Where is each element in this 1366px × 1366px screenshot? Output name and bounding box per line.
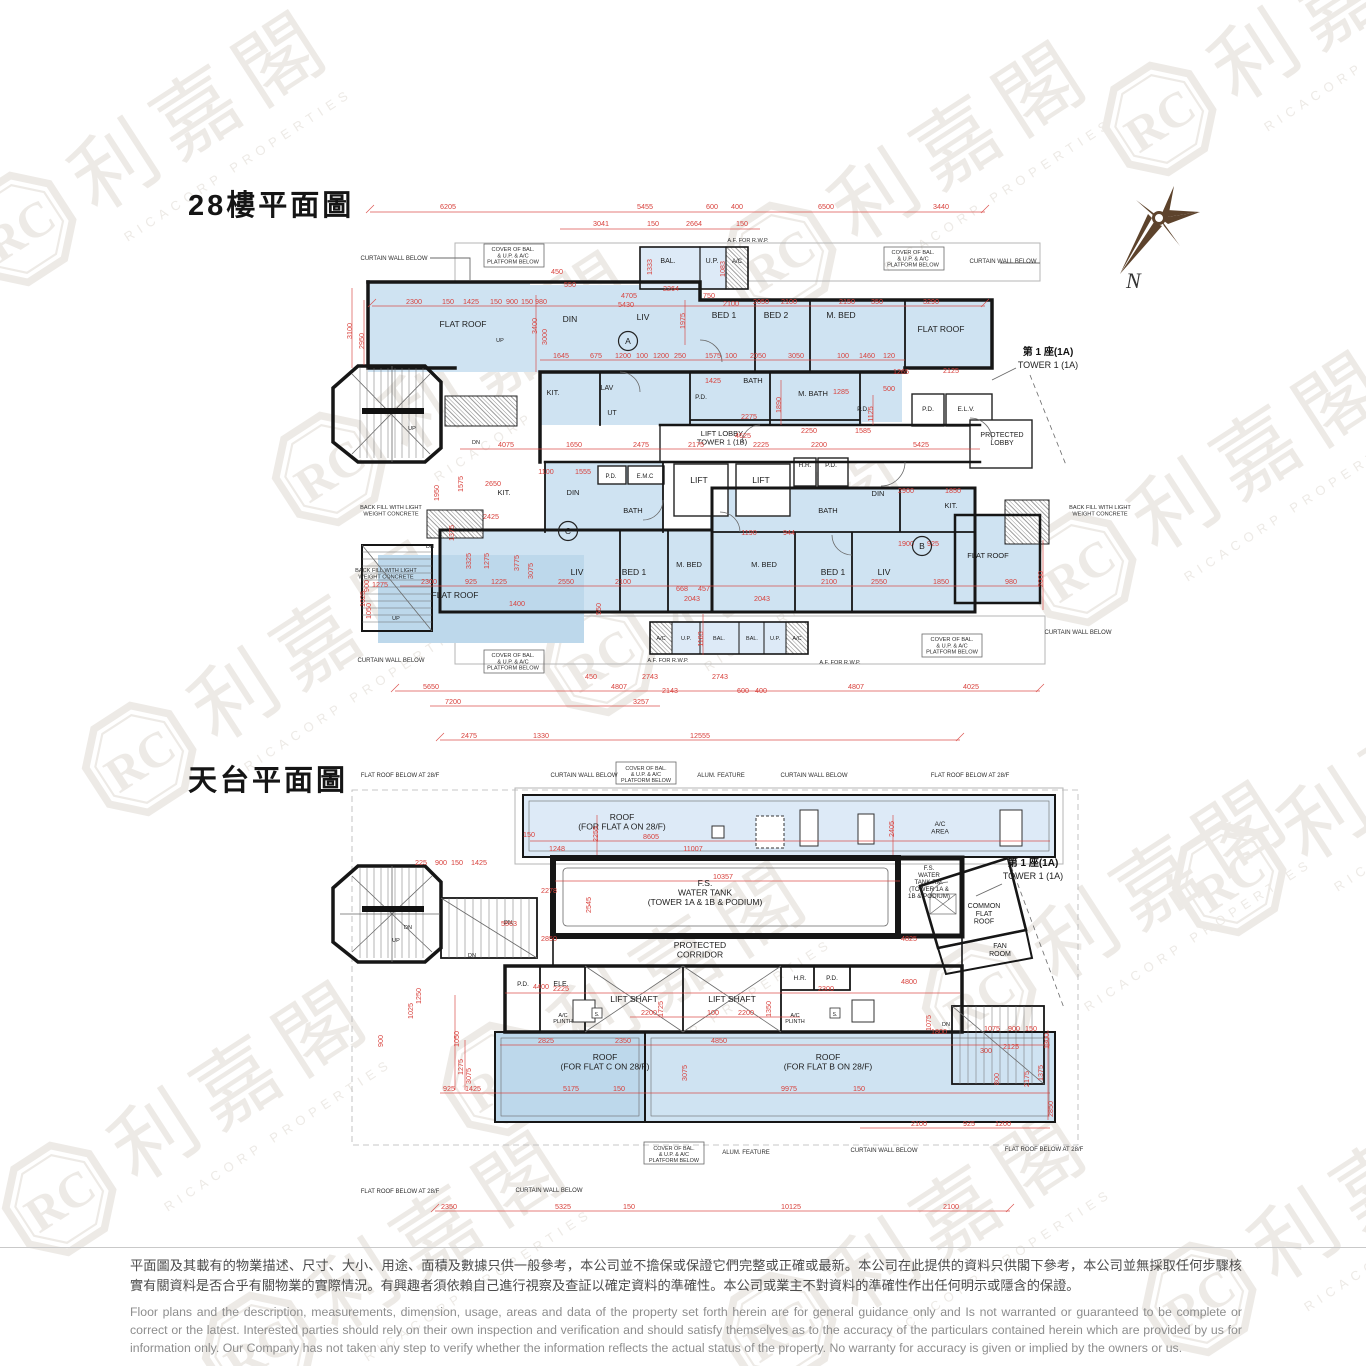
dimension-label: 1425 [705, 376, 721, 385]
dimension-label: 4850 [711, 1036, 727, 1045]
dimension-label: 400 [731, 202, 743, 211]
dimension-label: 2550 [558, 577, 574, 586]
dimension-label: 2250 [801, 426, 817, 435]
dimension-label: 150 [623, 1202, 635, 1211]
annotation-label: CURTAIN WALL BELOW [780, 773, 847, 779]
annotation-label: COVER OF BAL.& U.P. & A/CPLATFORM BELOW [487, 247, 540, 266]
dimension-label: 2350 [615, 1036, 631, 1045]
dimension-label: 450 [585, 672, 597, 681]
dimension-label: 3400 [530, 318, 539, 334]
dimension-label: 2300 [818, 984, 834, 993]
dimension-label: 1200 [615, 351, 631, 360]
room-label: U.P. [706, 258, 719, 265]
dimension-label: 2850 [1046, 1101, 1055, 1117]
dimension-label: 2100 [723, 299, 739, 308]
dimension-label: 150 [647, 219, 659, 228]
room-label: A/CPLINTH [785, 1013, 805, 1025]
dimension-label: 5175 [563, 1084, 579, 1093]
dimension-label: 2150 [839, 297, 855, 306]
dimension-label: 2200 [738, 1008, 754, 1017]
room-label: DN [468, 953, 476, 959]
annotation-label: CURTAIN WALL BELOW [969, 259, 1036, 265]
dimension-label: 925 [927, 539, 939, 548]
dimension-label: 100 [707, 1008, 719, 1017]
dimension-label: 6500 [818, 202, 834, 211]
room-label: UP [392, 616, 400, 622]
disclaimer: 平面圖及其載有的物業描述、尺寸、大小、用途、面積及數據只供一般參考，本公司並不擔… [130, 1256, 1242, 1357]
room-label: BED 2 [764, 310, 789, 320]
annotation-label: CURTAIN WALL BELOW [515, 1188, 582, 1194]
dimension-label: 150 [853, 1084, 865, 1093]
dimension-label: 3290 [923, 297, 939, 306]
room-label: M. BED [676, 560, 702, 569]
dimension-label: 1425 [471, 858, 487, 867]
annotation-label: COVER OF BAL.& U.P. & A/CPLATFORM BELOW [887, 250, 940, 269]
flat-letter: B [919, 541, 925, 551]
dimension-label: 1800 [931, 1027, 947, 1036]
annotation-label: A.F. FOR R.W.P. [647, 658, 689, 664]
annotation-label: BACK FILL WITH LIGHTWEIGHT CONCRETE [1069, 505, 1131, 517]
dimension-label: 2743 [642, 672, 658, 681]
dimension-label: 5430 [618, 300, 634, 309]
dimension-label: 1285 [833, 387, 849, 396]
room-label: UT [607, 410, 617, 417]
dimension-label: 100 [636, 351, 648, 360]
dimension-label: 980 [535, 297, 547, 306]
dimension-label: 5455 [637, 202, 653, 211]
dimension-label: 1850 [933, 577, 949, 586]
dimension-label: 2200 [641, 1008, 657, 1017]
plan-roof: 第 1 座(1A) TOWER 1 (1A) ROOF(FOR FLAT A O… [333, 731, 1084, 1212]
tower-tag-en-roof: TOWER 1 (1A) [1003, 871, 1063, 881]
annotation-label: CURTAIN WALL BELOW [850, 1148, 917, 1154]
dimension-label: 1975 [678, 313, 687, 329]
dimension-label: 3325 [464, 553, 473, 569]
room-label: DIN [567, 488, 580, 497]
dimension-label: 2664 [686, 219, 702, 228]
dimension-label: 1333 [645, 259, 654, 275]
dimension-label: 4625 [735, 431, 751, 440]
room-label: LAV [601, 385, 614, 392]
dimension-label: 2225 [553, 984, 569, 993]
room-label: E.L.V. [957, 406, 974, 413]
room-label: A/CPLINTH [553, 1013, 573, 1025]
dimension-label: 3440 [933, 202, 949, 211]
room-label: P.D. [825, 462, 837, 469]
dimension-label: 800 [992, 1073, 1001, 1085]
dimension-label: 1125 [866, 406, 875, 421]
dimension-label: 900 [362, 580, 371, 592]
dimension-label: 1725 [656, 1001, 665, 1017]
dimension-label: 12555 [690, 731, 710, 740]
dimension-label: 1183 [696, 631, 705, 646]
annotation-label: FLAT ROOF BELOW AT 28/F [361, 1189, 440, 1195]
annotation-label: ALUM. FEATURE [697, 773, 745, 779]
dimension-label: 2475 [461, 731, 477, 740]
dimension-label: 2743 [712, 672, 728, 681]
annotation-label: CURTAIN WALL BELOW [360, 256, 427, 262]
room-label: BED 1 [821, 567, 846, 577]
room-label: LIV [637, 312, 650, 322]
dimension-label: 5425 [913, 440, 929, 449]
dimension-label: 1645 [553, 351, 569, 360]
dimension-label: 2100 [911, 1119, 927, 1128]
dimension-label: 675 [590, 351, 602, 360]
room-label: DIN [872, 489, 885, 498]
annotation-label: A.F. FOR R.W.P. [727, 238, 769, 244]
room-label: P.D. [826, 975, 838, 982]
dimension-label: 1275 [482, 553, 491, 569]
dimension-label: 550 [594, 603, 603, 615]
dimension-label: 10357 [713, 872, 733, 881]
dimension-label: 2264 [663, 284, 679, 293]
dimension-label: 2300 [421, 577, 437, 586]
dimension-label: 3075 [526, 563, 535, 579]
room-label: DN [426, 544, 434, 550]
room-label: M. BED [751, 560, 777, 569]
room-label: S. [833, 1012, 838, 1018]
room-label: KIT. [498, 488, 511, 497]
dimension-label: 2550 [871, 577, 887, 586]
dimension-label: 457 [698, 584, 710, 593]
annotation-label: FLAT ROOF BELOW AT 28/F [1005, 1147, 1084, 1153]
dimension-label: 400 [755, 686, 767, 695]
dimension-label: 2143 [662, 686, 678, 695]
dimension-label: 944 [783, 528, 795, 537]
dimension-label: 1375 [447, 525, 456, 541]
annotation-label: COVER OF BAL.& U.P. & A/CPLATFORM BELOW [487, 653, 540, 672]
dimension-label: 2043 [684, 594, 700, 603]
dimension-label: 3257 [633, 697, 649, 706]
room-label: UP [496, 338, 504, 344]
room-label: M. BED [826, 310, 855, 320]
dimension-label: 2175 [688, 440, 704, 449]
dimension-label: 1300 [1042, 1033, 1051, 1049]
room-label: DN [472, 440, 480, 446]
dimension-label: 1350 [764, 1001, 773, 1017]
dimension-label: 2650 [485, 479, 501, 488]
dimension-label: 2275 [741, 412, 757, 421]
dimension-label: 1850 [945, 486, 961, 495]
dimension-label: 350 [871, 297, 883, 306]
dimension-label: 120 [883, 351, 895, 360]
dimension-label: 1025 [406, 1003, 415, 1019]
dimension-label: 550 [564, 280, 576, 289]
dimension-label: 100 [725, 351, 737, 360]
plan-roof-stair-octagon [333, 866, 537, 962]
dimension-label: 4400 [533, 982, 549, 991]
dimension-label: 4800 [901, 977, 917, 986]
dimension-label: 668 [676, 584, 688, 593]
dimension-label: 150 [490, 297, 502, 306]
roof-plan-title: 天台平面圖 [188, 757, 348, 799]
disclaimer-divider [0, 1247, 1366, 1248]
annotation-label: BACK FILL WITH LIGHTWEIGHT CONCRETE [360, 505, 422, 517]
dimension-label: 2425 [483, 512, 499, 521]
room-label: KIT. [547, 388, 560, 397]
dimension-label: 9975 [781, 1084, 797, 1093]
dimension-label: 1330 [533, 731, 549, 740]
plan-28f-stair-octagon [333, 366, 441, 462]
dimension-label: 3041 [593, 219, 609, 228]
tower-tag-zh-28f: 第 1 座(1A) [1023, 345, 1074, 358]
annotation-label: COVER OF BAL.& U.P. & A/CPLATFORM BELOW [649, 1146, 700, 1164]
dimension-label: 150 [736, 219, 748, 228]
room-label: BED 1 [712, 310, 737, 320]
dimension-label: 1225 [491, 577, 507, 586]
dimension-label: 2100 [821, 577, 837, 586]
dimension-label: 3100 [345, 323, 354, 339]
dimension-label: 8605 [643, 832, 659, 841]
room-label: LIV [571, 567, 584, 577]
room-label: PROTECTEDCORRIDOR [674, 940, 726, 960]
room-label: BATH [818, 506, 837, 515]
room-label: FLAT ROOF [432, 590, 479, 600]
annotation-label: A.F. FOR R.W.P. [819, 660, 861, 666]
dimension-label: 2950 [357, 333, 366, 349]
dimension-label: 2175 [1022, 1071, 1031, 1087]
dimension-label: 2405 [887, 821, 896, 837]
dimension-label: 1650 [566, 440, 582, 449]
dimension-label: 3050 [788, 351, 804, 360]
dimension-label: 3075 [680, 1065, 689, 1081]
dimension-label: 925 [963, 1119, 975, 1128]
dimension-label: 4807 [611, 682, 627, 691]
dimension-label: 925 [443, 1084, 455, 1093]
room-label: FLAT ROOF [918, 324, 965, 334]
dimension-label: 2125 [1003, 1042, 1019, 1051]
room-label: FANROOM [989, 943, 1011, 958]
dimension-label: 1250 [414, 988, 423, 1004]
dimension-label: 2050 [753, 297, 769, 306]
dimension-label: 600 [706, 202, 718, 211]
room-label: P.D. [517, 981, 529, 988]
room-label: BAL. [713, 636, 725, 642]
dimension-label: 11007 [683, 844, 702, 853]
dimension-label: 750 [703, 291, 715, 300]
dimension-label: 2100 [943, 1202, 959, 1211]
dimension-label: 2100 [781, 297, 797, 306]
dimension-label: 2278 [541, 886, 557, 895]
room-label: FLAT ROOF [967, 551, 1009, 560]
room-label: E.M.C [637, 474, 654, 480]
room-label: BED 1 [622, 567, 647, 577]
dimension-label: 1425 [465, 1084, 481, 1093]
dimension-label: 10125 [781, 1202, 801, 1211]
room-label: F.S.WATER TANK(TOWER 1A & 1B & PODIUM) [648, 878, 763, 907]
dimension-label: 150 [451, 858, 463, 867]
dimension-label: 3000 [540, 329, 549, 345]
dimension-label: 150 [613, 1084, 625, 1093]
room-label: FLAT ROOF [440, 319, 487, 329]
dimension-label: 500 [883, 384, 895, 393]
dimension-label: 2100 [615, 577, 631, 586]
dimension-label: 4025 [963, 682, 979, 691]
dimension-label: 2125 [943, 366, 959, 375]
dimension-label: 2200 [811, 440, 827, 449]
dimension-label: 300 [980, 1046, 992, 1055]
dimension-label: 1900 [898, 539, 914, 548]
room-label: A/C [732, 259, 743, 265]
room-label: H.R. [794, 975, 807, 982]
room-label: DN [404, 925, 412, 931]
dimension-label: 1460 [859, 351, 875, 360]
room-label: A/C [656, 636, 665, 642]
dimension-label: 2000 [1036, 571, 1045, 587]
dimension-label: 150 [521, 297, 533, 306]
room-label: P.D. [922, 406, 934, 413]
room-label: A/C [792, 636, 801, 642]
dimension-label: 1248 [549, 844, 565, 853]
room-label: KIT. [945, 501, 958, 510]
dimension-label: 2900 [898, 486, 914, 495]
dimension-label: 1200 [653, 351, 669, 360]
compass-n-label: N [1125, 268, 1142, 293]
dimension-label: 1275 [372, 580, 388, 589]
dimension-label: 1083 [718, 261, 727, 277]
room-label: UP [408, 426, 416, 432]
annotation-label: COVER OF BAL.& U.P. & A/CPLATFORM BELOW [621, 766, 672, 784]
dimension-label: 1265 [893, 367, 909, 376]
room-label: UP [392, 938, 400, 944]
annotation-label: FLAT ROOF BELOW AT 28/F [361, 773, 440, 779]
annotation-label: CURTAIN WALL BELOW [357, 658, 424, 664]
room-label: M. BATH [798, 389, 828, 398]
dimension-label: 900 [435, 858, 447, 867]
dimension-label: 1950 [432, 485, 441, 501]
room-label: P.D. [606, 474, 617, 480]
dimension-label: 2050 [750, 351, 766, 360]
annotation-label: FLAT ROOF BELOW AT 28/F [931, 773, 1010, 779]
room-label: BAL. [660, 258, 675, 265]
dimension-label: 150 [1025, 1024, 1037, 1033]
dimension-label: 1555 [575, 467, 591, 476]
dimension-label: 1025 [358, 591, 367, 607]
dimension-label: 600 [737, 686, 749, 695]
north-compass-icon: N [1112, 184, 1204, 296]
dimension-label: 4075 [498, 440, 514, 449]
dimension-label: 7200 [445, 697, 461, 706]
plan-28f: 第 1 座(1A) TOWER 1 (1A) FLAT ROOFDINLIVBE… [333, 202, 1131, 706]
dimension-label: 900 [1008, 1024, 1020, 1033]
disclaimer-chinese: 平面圖及其載有的物業描述、尺寸、大小、用途、面積及數據只供一般參考，本公司並不擔… [130, 1256, 1242, 1297]
dimension-label: 250 [674, 351, 686, 360]
annotation-label: CURTAIN WALL BELOW [550, 773, 617, 779]
dimension-label: 4807 [848, 682, 864, 691]
flat-letter: C [565, 526, 571, 536]
dimension-label: 450 [551, 267, 563, 276]
dimension-label: 1890 [774, 397, 783, 413]
dimension-label: 150 [442, 297, 454, 306]
dimension-label: 5325 [555, 1202, 571, 1211]
dimension-label: 1575 [705, 351, 721, 360]
dimension-label: 1575 [456, 476, 465, 492]
dimension-label: 2825 [538, 1036, 554, 1045]
room-label: LIFT SHAFT [708, 994, 756, 1004]
room-label: DIN [563, 314, 578, 324]
dimension-label: 100 [837, 351, 849, 360]
dimension-label: 225 [415, 858, 427, 867]
tower-tag-zh-roof: 第 1 座(1A) [1008, 856, 1059, 869]
room-label: U.P. [770, 636, 780, 642]
disclaimer-english: Floor plans and the description, measure… [130, 1304, 1242, 1357]
dimension-label: 900 [506, 297, 518, 306]
floor-plan-title: 28樓平面圖 [188, 182, 354, 224]
dimension-label: 925 [465, 577, 477, 586]
dimension-label: 2350 [441, 1202, 457, 1211]
dimension-label: 2300 [406, 297, 422, 306]
dimension-label: 1400 [509, 599, 525, 608]
dimension-label: 980 [1005, 577, 1017, 586]
room-label: LIFT SHAFT [610, 994, 658, 1004]
dimension-label: 2475 [633, 440, 649, 449]
tower-tag-en-28f: TOWER 1 (1A) [1018, 360, 1078, 370]
room-label: LIFT [752, 475, 769, 485]
room-label: LIFT [690, 475, 707, 485]
dimension-label: 900 [376, 1035, 385, 1047]
dimension-label: 1075 [924, 1015, 933, 1031]
flat-letter: A [625, 336, 631, 346]
dimension-label: 2225 [753, 440, 769, 449]
dimension-label: 2850 [541, 934, 557, 943]
annotation-label: COVER OF BAL.& U.P. & A/CPLATFORM BELOW [926, 637, 979, 656]
annotation-label: ALUM. FEATURE [722, 1150, 770, 1156]
plan-roof-services [505, 936, 962, 1032]
dimension-label: 1050 [452, 1031, 461, 1047]
room-label: LIV [878, 567, 891, 577]
dimension-label: 5563 [501, 919, 517, 928]
dimension-label: 1100 [538, 467, 553, 476]
dimension-label: 1425 [463, 297, 479, 306]
dimension-label: 1190 [741, 528, 756, 537]
room-label: BATH [623, 506, 642, 515]
dimension-label: 1200 [995, 1119, 1011, 1128]
dimension-label: 1375 [1036, 1065, 1045, 1081]
dimension-label: 1075 [984, 1024, 1000, 1033]
room-label: BAL. [746, 636, 758, 642]
dimension-label: 5650 [423, 682, 439, 691]
dimension-label: 6205 [440, 202, 456, 211]
dimension-label: 4825 [901, 934, 917, 943]
room-label: BATH [743, 376, 762, 385]
dimension-label: 1585 [855, 426, 871, 435]
room-label: U.P. [681, 636, 691, 642]
floor-plan-page: RC利嘉閣RICACORP PROPERTIESRC利嘉閣RICACORP PR… [0, 0, 1366, 1366]
dimension-label: 3775 [512, 555, 521, 571]
dimension-label: 3075 [464, 1068, 473, 1084]
dimension-label: 4705 [621, 291, 637, 300]
annotation-label: BACK FILL WITH LIGHTWEIGHT CONCRETE [355, 568, 417, 580]
dimension-label: 2545 [584, 897, 593, 913]
room-label: H.R. [799, 462, 812, 469]
room-label: COMMONFLATROOF [968, 903, 1001, 926]
room-label: P.D. [695, 394, 707, 401]
dimension-label: 2255 [591, 826, 600, 842]
annotation-label: CURTAIN WALL BELOW [1044, 630, 1111, 636]
dimension-label: 150 [523, 830, 535, 839]
room-label: S. [595, 1012, 600, 1018]
dimension-label: 2043 [754, 594, 770, 603]
